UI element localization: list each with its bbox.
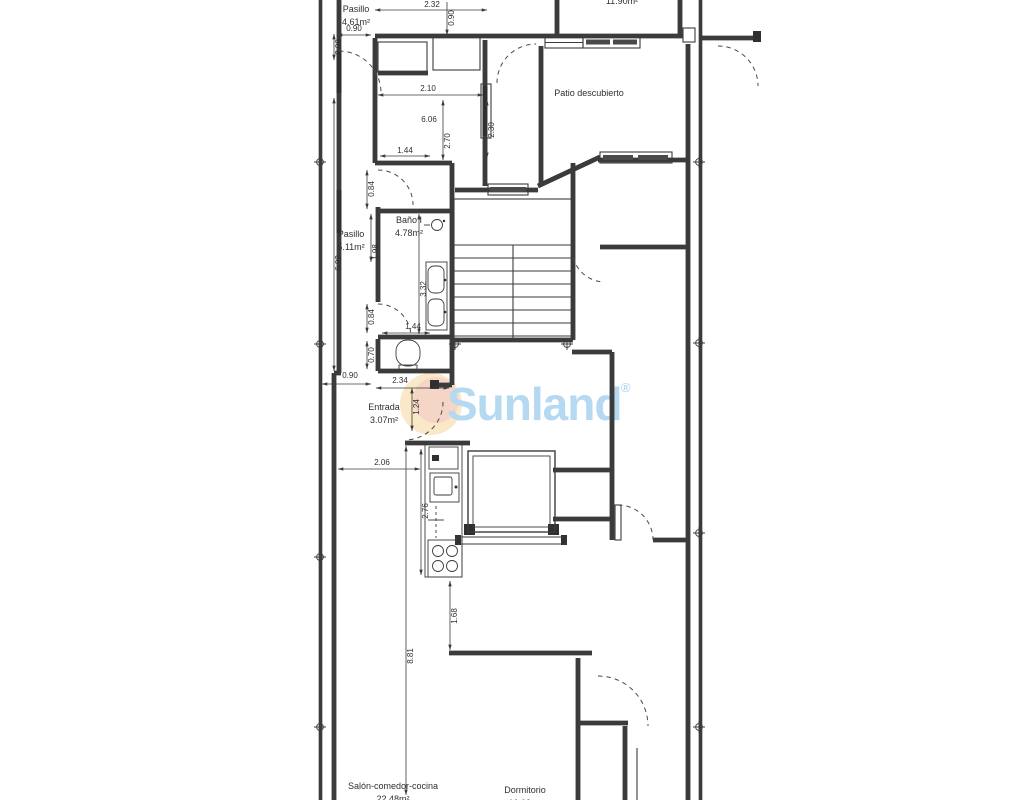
door-leaf xyxy=(615,505,621,540)
room-label-salon-comedor-cocina: 22.48m² xyxy=(376,794,409,800)
dimension-label: 0.90 xyxy=(346,24,362,33)
room-label-dormitorio: Dormitorio xyxy=(504,785,546,795)
dimension-label: 2.30 xyxy=(487,122,496,138)
room-label-bano-1: Baño I xyxy=(396,215,422,225)
room-label-pasillo-mid: Pasillo xyxy=(338,229,365,239)
dimension-labels: 2.320.900.902.092.106.062.702.301.440.84… xyxy=(334,0,496,664)
dimension-label: 1.98 xyxy=(371,244,380,260)
dimension-label: 2.06 xyxy=(374,458,390,467)
brand-wordmark: Sunland xyxy=(447,378,621,430)
burner xyxy=(447,546,458,557)
dimension-label: 0.70 xyxy=(367,347,376,363)
door-arc xyxy=(598,676,648,726)
washbasin-icon xyxy=(432,220,443,231)
dimension-label: 2.70 xyxy=(443,133,452,149)
dimension-label: 1.68 xyxy=(450,608,459,624)
dimension-label: 0.84 xyxy=(367,309,376,325)
floor-plan-page: Sunland ® xyxy=(0,0,1024,800)
kitchen-counter xyxy=(425,444,462,577)
dimension-label: 0.84 xyxy=(367,181,376,197)
dimension-label: 6.06 xyxy=(421,115,437,124)
dimension-label: 1.24 xyxy=(412,399,421,415)
dimension-label: 2.76 xyxy=(421,503,430,519)
door-arc xyxy=(718,46,758,86)
room-label-bano-1: 4.78m² xyxy=(395,228,423,238)
registered-mark-icon: ® xyxy=(621,380,631,395)
dimension-label: 1.44 xyxy=(397,146,413,155)
room-label-patio-descubierto: Patio descubierto xyxy=(554,88,624,98)
kitchen-fixtures xyxy=(425,444,462,577)
windows xyxy=(481,28,695,195)
window-bar xyxy=(337,190,342,233)
dimension-label: 3.32 xyxy=(419,281,428,297)
burner xyxy=(433,561,444,572)
burner xyxy=(433,546,444,557)
faucet-dot xyxy=(443,220,445,222)
faucet-dot xyxy=(455,486,458,489)
door-leaf-bar xyxy=(337,51,342,93)
toilet-icon xyxy=(396,340,420,366)
dimension-label: 2.32 xyxy=(424,0,440,9)
stove-icon xyxy=(428,540,462,577)
dimension-label: 0.90 xyxy=(342,371,358,380)
survey-markers xyxy=(314,156,705,733)
storage-rooms xyxy=(378,37,480,72)
dimension-label: 8.81 xyxy=(406,648,415,664)
dimension-label: 6.92 xyxy=(334,255,343,271)
room-label-entrada: Entrada xyxy=(368,402,400,412)
stairs xyxy=(454,199,572,341)
door-arc xyxy=(572,249,604,282)
sink-icon xyxy=(428,299,444,326)
dimension-label: 2.09 xyxy=(334,39,343,55)
faucet-dot xyxy=(444,279,447,282)
dimension-label: 0.90 xyxy=(447,10,456,26)
dimension-label: 2.10 xyxy=(420,84,436,93)
faucet-dot xyxy=(444,311,447,314)
floor-plan-drawing: Sunland ® xyxy=(0,0,1024,800)
room-label-pasillo-mid: 5.11m² xyxy=(337,242,364,252)
burner xyxy=(447,561,458,572)
dimension-label: 1.44 xyxy=(405,322,421,331)
door-arc xyxy=(378,304,411,337)
door-arc xyxy=(618,505,653,540)
door-arc xyxy=(378,170,413,205)
sink-icon xyxy=(428,266,444,293)
door-arc xyxy=(497,44,536,83)
room-label-top-room-clipped: 11.90m² xyxy=(606,0,638,6)
door-post xyxy=(753,31,761,42)
room-label-entrada: 3.07m² xyxy=(370,415,398,425)
dimension-label: 2.34 xyxy=(392,376,408,385)
room-label-pasillo-top: Pasillo xyxy=(343,4,370,14)
room-label-salon-comedor-cocina: Salón-comedor-cocina xyxy=(348,781,438,791)
wall-fills xyxy=(337,31,762,545)
